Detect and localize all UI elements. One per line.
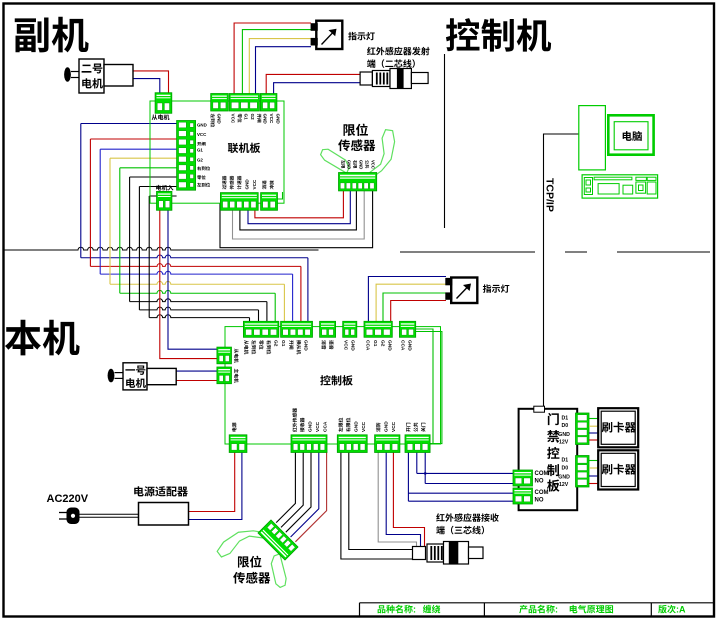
svg-text:CCA: CCA bbox=[323, 421, 329, 432]
svg-text:VCC: VCC bbox=[197, 132, 207, 137]
svg-text:GND: GND bbox=[308, 421, 314, 432]
svg-text:D0: D0 bbox=[562, 423, 569, 429]
svg-text:COM: COM bbox=[535, 471, 549, 477]
svg-text:GND: GND bbox=[387, 340, 393, 351]
svg-text:NO: NO bbox=[535, 498, 544, 504]
svg-text::: : bbox=[555, 605, 558, 615]
svg-text:G2: G2 bbox=[380, 340, 386, 347]
svg-text:VCC: VCC bbox=[391, 421, 397, 432]
svg-text:D1: D1 bbox=[562, 415, 569, 421]
svg-text:G1: G1 bbox=[197, 148, 203, 153]
svg-text:GND: GND bbox=[558, 432, 570, 438]
svg-text:D0: D0 bbox=[562, 465, 569, 471]
svg-text:CCA: CCA bbox=[365, 340, 371, 351]
svg-text:GND: GND bbox=[263, 114, 268, 125]
svg-text:VCC: VCC bbox=[231, 114, 236, 124]
svg-text:VCC: VCC bbox=[361, 421, 367, 432]
svg-text::A: :A bbox=[676, 605, 686, 615]
svg-text:VCC: VCC bbox=[269, 114, 274, 124]
svg-text:G1: G1 bbox=[372, 340, 378, 347]
svg-text:G2: G2 bbox=[250, 114, 255, 121]
svg-text:NO: NO bbox=[535, 479, 544, 485]
svg-text:G2: G2 bbox=[273, 340, 279, 347]
svg-text:GND: GND bbox=[350, 340, 356, 351]
svg-text::: : bbox=[413, 605, 416, 615]
svg-text:G1: G1 bbox=[280, 340, 286, 347]
svg-text:GND: GND bbox=[384, 421, 390, 432]
svg-text:COM: COM bbox=[535, 490, 549, 496]
svg-text:VCC: VCC bbox=[343, 340, 349, 351]
svg-text:CCA: CCA bbox=[400, 340, 406, 351]
svg-text:VCC: VCC bbox=[371, 160, 376, 169]
svg-text:GND: GND bbox=[354, 421, 360, 432]
svg-text:GND: GND bbox=[303, 340, 309, 351]
svg-text:+12V: +12V bbox=[556, 440, 569, 446]
svg-text:G1: G1 bbox=[244, 114, 249, 121]
svg-text:VCC: VCC bbox=[252, 179, 257, 189]
svg-text:TCP/IP: TCP/IP bbox=[544, 178, 556, 212]
svg-text:GND: GND bbox=[276, 114, 281, 125]
svg-text:GND: GND bbox=[245, 179, 250, 190]
svg-text:G2: G2 bbox=[197, 158, 203, 163]
svg-text:GND: GND bbox=[197, 123, 207, 128]
svg-text:GND: GND bbox=[407, 340, 413, 351]
svg-text:GND: GND bbox=[558, 475, 570, 481]
svg-text:D1: D1 bbox=[562, 458, 569, 464]
svg-text:VCC: VCC bbox=[315, 421, 321, 432]
svg-text:GND: GND bbox=[347, 160, 352, 169]
svg-text:+12V: +12V bbox=[556, 482, 569, 488]
svg-text:GND: GND bbox=[359, 160, 364, 169]
svg-text:GND: GND bbox=[217, 114, 222, 125]
svg-text:AC220V: AC220V bbox=[47, 493, 89, 505]
